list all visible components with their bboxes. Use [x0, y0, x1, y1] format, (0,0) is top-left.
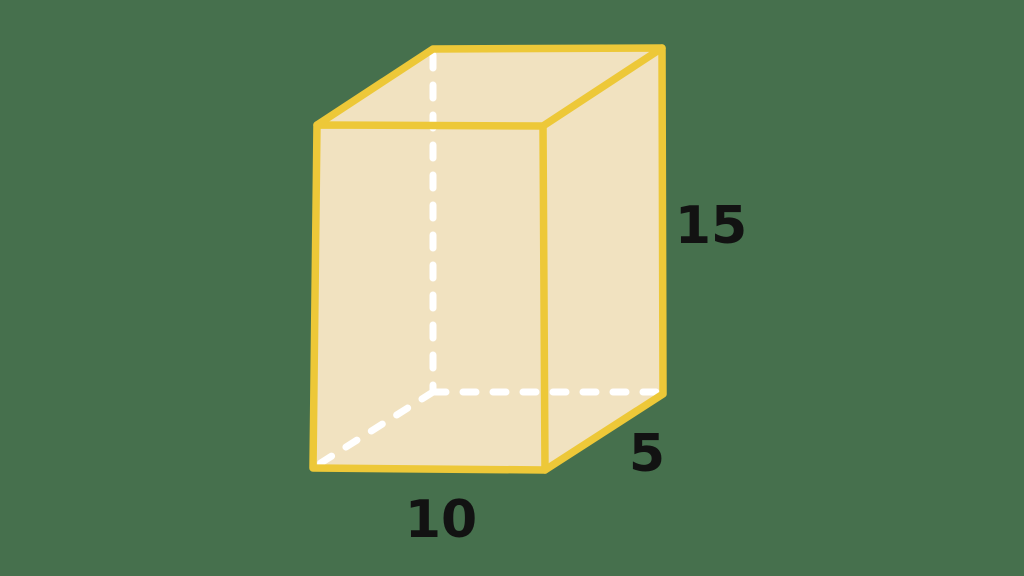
- diagram-canvas: 15 5 10: [0, 0, 1024, 576]
- width-label: 10: [405, 490, 477, 550]
- height-label: 15: [675, 196, 747, 256]
- prism-body-fill: [313, 48, 663, 470]
- prism-diagram: 15 5 10: [0, 0, 1024, 576]
- depth-label: 5: [629, 424, 665, 484]
